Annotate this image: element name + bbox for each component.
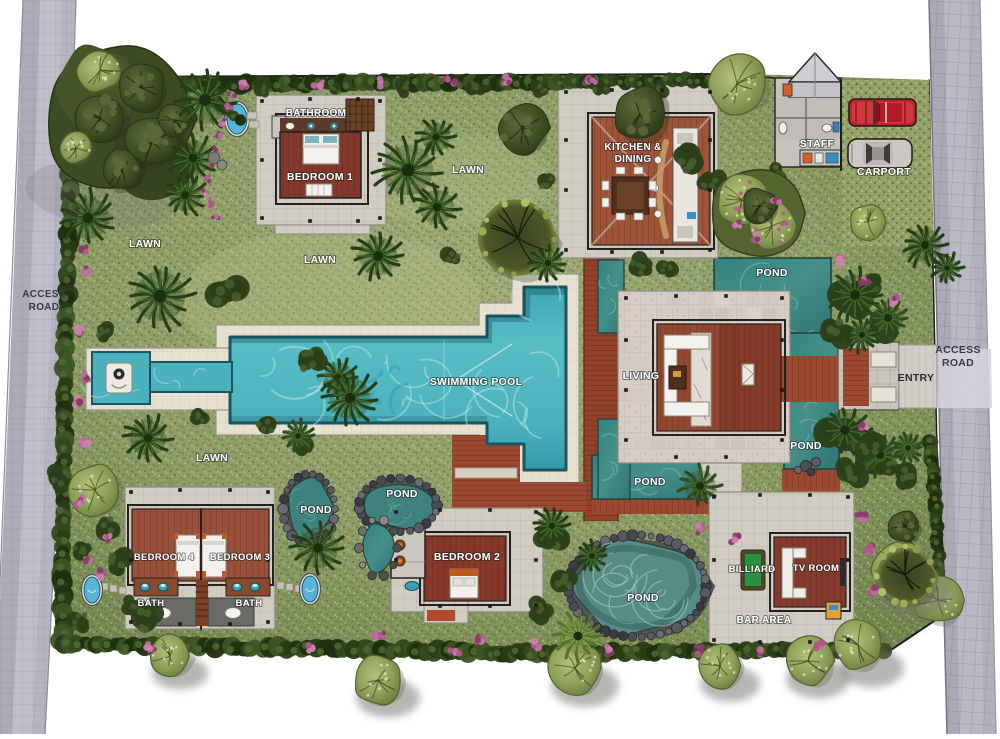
svg-text:TV ROOM: TV ROOM: [793, 563, 839, 574]
svg-text:BATHROOM: BATHROOM: [286, 108, 347, 119]
svg-text:ROAD: ROAD: [942, 357, 974, 369]
svg-text:BEDROOM 1: BEDROOM 1: [287, 171, 353, 183]
svg-text:ACCESS: ACCESS: [22, 289, 66, 300]
svg-text:LAWN: LAWN: [452, 164, 484, 176]
svg-text:STAFF: STAFF: [800, 138, 835, 150]
svg-text:POND: POND: [627, 592, 659, 604]
svg-text:KITCHEN &: KITCHEN &: [604, 142, 661, 153]
svg-text:BEDROOM 2: BEDROOM 2: [434, 551, 500, 563]
svg-text:POND: POND: [790, 440, 822, 452]
svg-text:POND: POND: [300, 504, 332, 516]
svg-text:BILLIARD: BILLIARD: [729, 564, 776, 575]
svg-text:ROAD: ROAD: [29, 302, 60, 313]
svg-text:LIVING: LIVING: [623, 370, 660, 382]
svg-text:CARPORT: CARPORT: [857, 166, 911, 178]
svg-text:LAWN: LAWN: [196, 452, 228, 464]
svg-text:SWIMMING POOL: SWIMMING POOL: [430, 376, 523, 388]
svg-text:POND: POND: [386, 488, 418, 500]
svg-text:BATH: BATH: [138, 598, 165, 609]
svg-text:ENTRY: ENTRY: [898, 372, 935, 384]
svg-text:BEDROOM 3: BEDROOM 3: [210, 552, 270, 563]
svg-text:BATH: BATH: [236, 598, 263, 609]
svg-text:POND: POND: [634, 476, 666, 488]
svg-text:LAWN: LAWN: [129, 238, 161, 250]
svg-text:ACCESS: ACCESS: [935, 344, 981, 356]
svg-text:LAWN: LAWN: [304, 254, 336, 266]
svg-text:BEDROOM 4: BEDROOM 4: [134, 552, 195, 563]
svg-text:BAR AREA: BAR AREA: [737, 615, 792, 626]
svg-text:DINING: DINING: [615, 154, 652, 165]
svg-text:POND: POND: [756, 267, 788, 279]
